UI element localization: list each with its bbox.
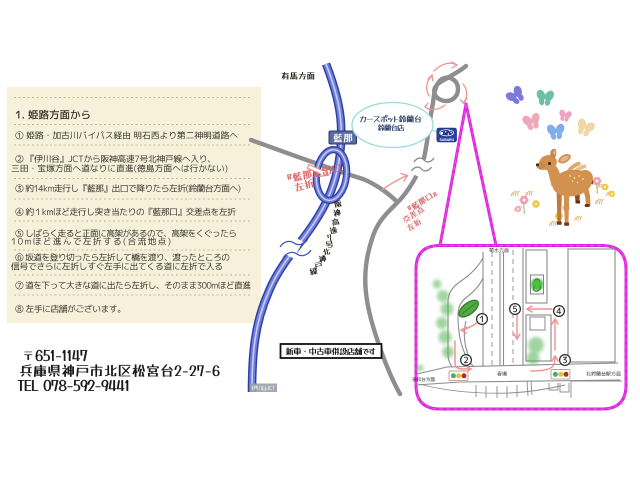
svg-text:SUBARU: SUBARU: [440, 138, 455, 142]
